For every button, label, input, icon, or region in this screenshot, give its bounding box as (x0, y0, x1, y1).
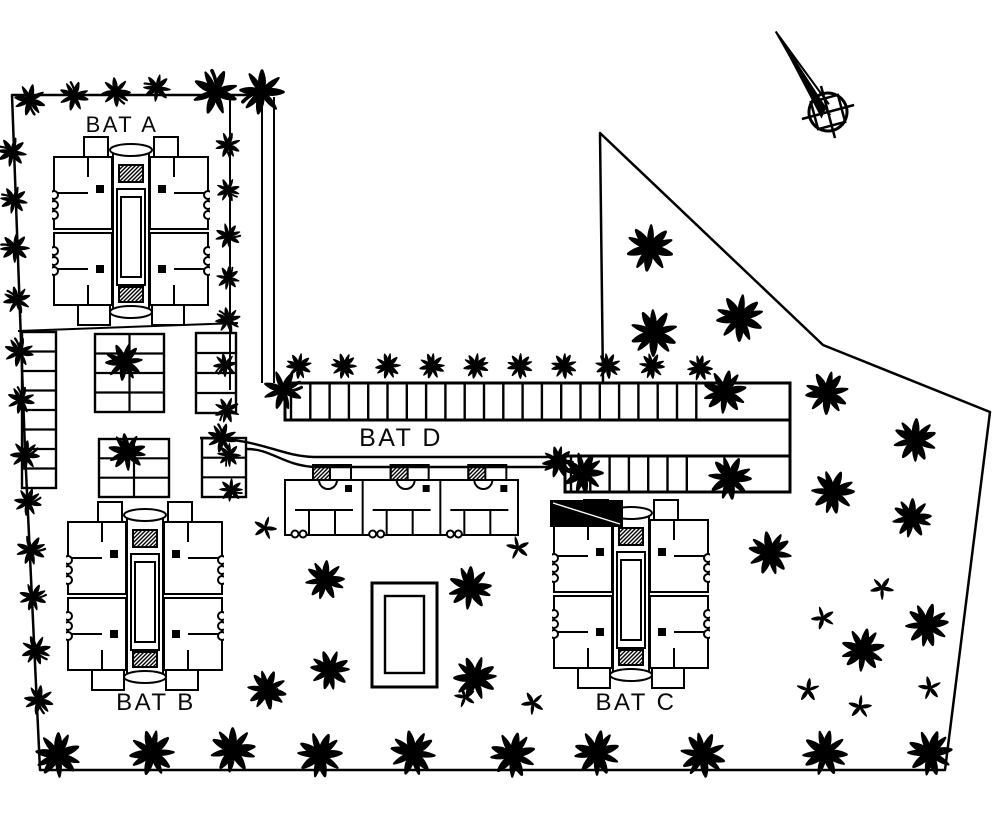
site-plan-drawing: BAT A BAT B BAT C BAT D (0, 0, 1000, 834)
building-bat-a (50, 137, 212, 325)
palm-tree-icon (707, 285, 774, 352)
palm-tree-icon (212, 174, 244, 206)
north-arrow-icon (747, 13, 875, 159)
palm-tree-icon (99, 75, 133, 109)
building-bat-b (64, 502, 226, 690)
palm-tree-icon (568, 724, 626, 782)
label-bat-d: BAT D (359, 424, 443, 452)
site-plan-canvas: BAT A BAT B BAT C BAT D (0, 0, 1000, 834)
palm-tree-icon (802, 461, 864, 523)
palm-tree-icon (884, 409, 946, 470)
palm-tree-icon (119, 721, 184, 786)
palm-tree-icon (0, 131, 33, 173)
small-palm-tree-icon (249, 512, 282, 545)
palm-tree-icon (211, 351, 239, 379)
palm-tree-icon (328, 350, 360, 382)
small-palm-tree-icon (810, 605, 836, 631)
palm-tree-icon (212, 304, 244, 336)
palm-tree-icon (0, 282, 35, 318)
palm-tree-icon (439, 557, 500, 618)
building-bat-d (285, 465, 518, 538)
palm-tree-icon (370, 348, 407, 385)
small-palm-tree-icon (868, 574, 896, 602)
palm-tree-icon (211, 261, 245, 295)
palm-tree-icon (100, 425, 154, 479)
palm-tree-icon (591, 349, 626, 384)
palm-tree-icon (502, 348, 539, 385)
palm-tree-icon (22, 683, 56, 716)
palm-tree-icon (211, 219, 246, 254)
palm-tree-icon (484, 727, 541, 784)
boundary-line (18, 323, 238, 331)
swimming-pool-inner (385, 596, 424, 673)
palm-tree-icon (303, 558, 347, 601)
palm-tree-icon (239, 69, 285, 115)
palm-tree-icon (103, 341, 145, 383)
palm-tree-icon (295, 730, 345, 780)
palm-tree-icon (186, 63, 245, 122)
palm-tree-icon (621, 300, 688, 367)
palm-tree-icon (445, 648, 506, 709)
palm-tree-icon (211, 129, 244, 162)
palm-tree-icon (417, 350, 448, 381)
palm-tree-icon (383, 723, 442, 782)
palm-tree-icon (212, 438, 246, 472)
palm-tree-icon (562, 452, 604, 494)
palm-tree-icon (673, 725, 734, 786)
palm-tree-icon (835, 622, 891, 678)
palm-tree-icon (209, 392, 244, 427)
palm-tree-icon (304, 644, 355, 695)
small-palm-tree-icon (916, 673, 945, 702)
label-bat-c: BAT C (596, 689, 677, 716)
palm-tree-icon (12, 82, 49, 119)
label-bat-a: BAT A (86, 112, 159, 137)
building-bat-c (550, 500, 712, 688)
palm-tree-icon (896, 594, 958, 656)
palm-tree-icon (459, 349, 492, 382)
label-bat-b: BAT B (116, 689, 196, 716)
swimming-pool (372, 583, 437, 687)
palm-tree-icon (891, 497, 933, 538)
palm-tree-icon (620, 218, 679, 278)
palm-tree-icon (210, 727, 257, 774)
small-palm-tree-icon (845, 692, 875, 722)
palm-tree-icon (137, 68, 177, 108)
palm-tree-icon (10, 440, 40, 470)
small-palm-tree-icon (501, 531, 534, 564)
palm-tree-icon (741, 524, 798, 581)
small-palm-tree-icon (791, 674, 824, 707)
small-palm-tree-icon (517, 687, 549, 719)
palm-tree-icon (794, 723, 855, 784)
palm-tree-icon (804, 370, 850, 416)
palm-tree-icon (550, 352, 579, 381)
palm-tree-icon (683, 351, 717, 385)
